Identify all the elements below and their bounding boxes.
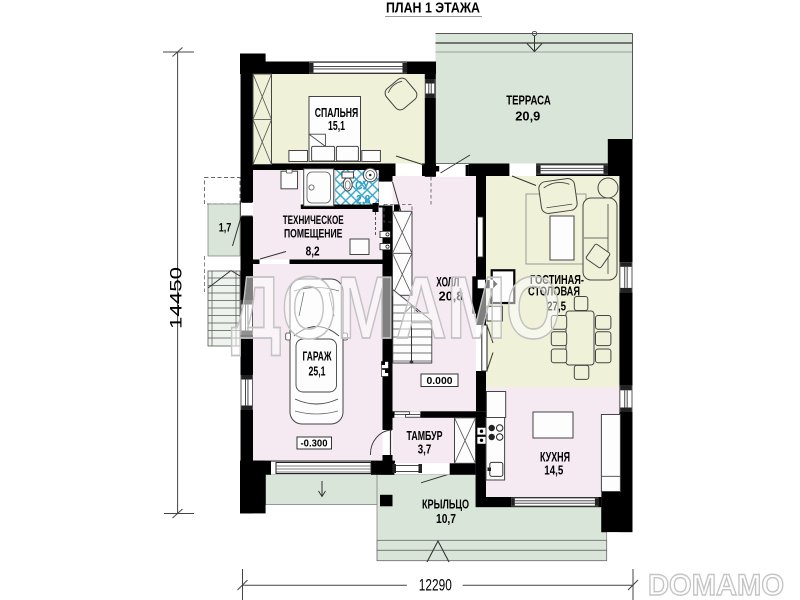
svg-text:КРЫЛЬЦО: КРЫЛЬЦО bbox=[422, 497, 469, 512]
svg-text:15,1: 15,1 bbox=[328, 119, 345, 133]
svg-text:-0.300: -0.300 bbox=[301, 438, 328, 450]
svg-text:0.000: 0.000 bbox=[427, 375, 453, 387]
svg-text:14,5: 14,5 bbox=[544, 463, 563, 478]
svg-text:ПОМЕЩЕНИЕ: ПОМЕЩЕНИЕ bbox=[284, 227, 343, 241]
svg-text:2,8: 2,8 bbox=[356, 193, 371, 207]
svg-text:СПАЛЬНЯ: СПАЛЬНЯ bbox=[315, 105, 359, 120]
svg-text:20,9: 20,9 bbox=[515, 110, 540, 124]
svg-text:14450: 14450 bbox=[167, 267, 186, 329]
svg-text:8,2: 8,2 bbox=[306, 245, 320, 259]
svg-text:10,7: 10,7 bbox=[436, 511, 456, 526]
svg-text:ДОМАМО: ДОМАМО bbox=[231, 258, 561, 357]
svg-text:ТЕРРАСА: ТЕРРАСА bbox=[506, 93, 551, 108]
svg-text:25,1: 25,1 bbox=[309, 365, 326, 379]
svg-text:3,7: 3,7 bbox=[418, 443, 432, 457]
svg-text:12290: 12290 bbox=[419, 576, 452, 595]
svg-text:СУ: СУ bbox=[355, 178, 369, 192]
svg-text:ТЕХНИЧЕСКОЕ: ТЕХНИЧЕСКОЕ bbox=[283, 213, 344, 227]
svg-text:ТАМБУР: ТАМБУР bbox=[407, 429, 443, 443]
svg-text:1,7: 1,7 bbox=[219, 223, 232, 235]
svg-text:DOMAMO: DOMAMO bbox=[648, 569, 784, 600]
svg-text:ПЛАН 1 ЭТАЖА: ПЛАН 1 ЭТАЖА bbox=[386, 1, 480, 17]
